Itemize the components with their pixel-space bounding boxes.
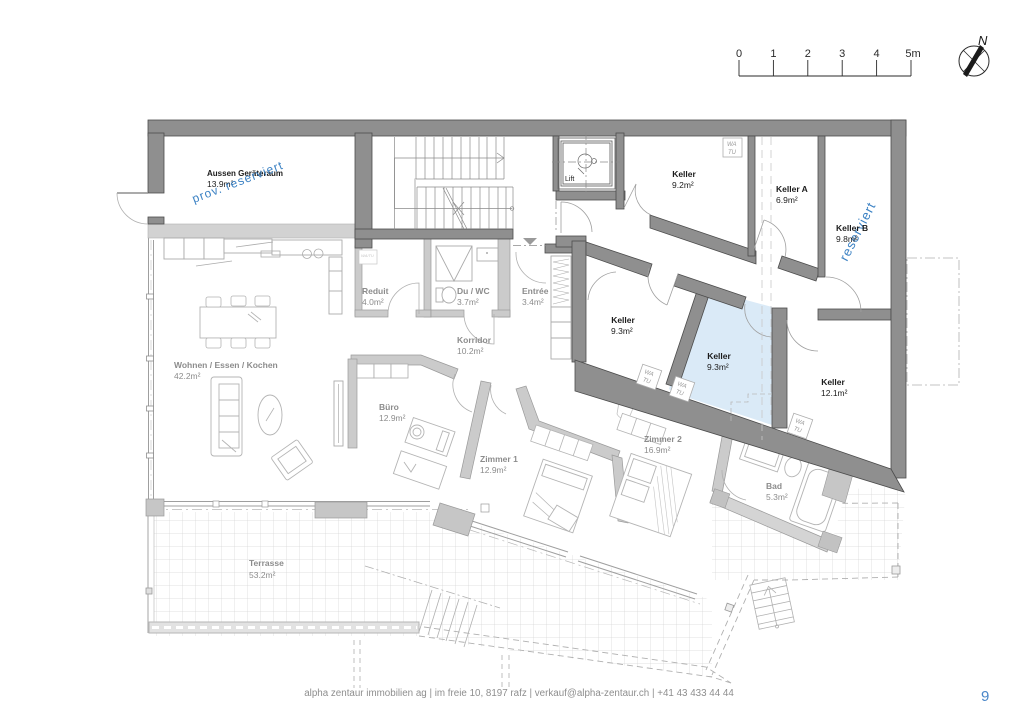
- svg-text:WA/TU: WA/TU: [361, 253, 374, 258]
- svg-text:Keller B: Keller B: [836, 223, 868, 233]
- svg-text:N: N: [978, 33, 988, 48]
- svg-text:16.9m²: 16.9m²: [644, 445, 671, 455]
- svg-text:1: 1: [770, 48, 776, 60]
- svg-text:Entrée: Entrée: [522, 286, 549, 296]
- svg-text:9.2m²: 9.2m²: [672, 180, 694, 190]
- svg-text:10.2m²: 10.2m²: [457, 346, 484, 356]
- svg-text:12.9m²: 12.9m²: [379, 413, 406, 423]
- svg-text:Keller: Keller: [672, 169, 696, 179]
- svg-text:5m: 5m: [905, 48, 920, 60]
- svg-text:Bad: Bad: [766, 481, 782, 491]
- svg-text:Du / WC: Du / WC: [457, 286, 490, 296]
- svg-text:Reduit: Reduit: [362, 286, 389, 296]
- svg-text:Wohnen / Essen / Kochen: Wohnen / Essen / Kochen: [174, 360, 278, 370]
- svg-text:2: 2: [805, 48, 811, 60]
- svg-text:9: 9: [981, 688, 989, 705]
- svg-text:Keller: Keller: [707, 351, 731, 361]
- svg-text:Büro: Büro: [379, 402, 399, 412]
- svg-text:12.9m²: 12.9m²: [480, 465, 507, 475]
- svg-text:Keller A: Keller A: [776, 184, 808, 194]
- svg-text:4: 4: [874, 48, 880, 60]
- svg-text:Keller: Keller: [821, 377, 845, 387]
- svg-text:5.3m²: 5.3m²: [766, 492, 788, 502]
- svg-text:9.3m²: 9.3m²: [611, 326, 633, 336]
- svg-text:42.2m²: 42.2m²: [174, 371, 201, 381]
- svg-text:alpha zentaur immobilien ag |: alpha zentaur immobilien ag | im freie 1…: [304, 688, 734, 699]
- svg-text:3: 3: [839, 48, 845, 60]
- svg-text:Keller: Keller: [611, 315, 635, 325]
- svg-text:3.4m²: 3.4m²: [522, 297, 544, 307]
- svg-text:TU: TU: [728, 150, 737, 156]
- svg-text:9.8m²: 9.8m²: [836, 234, 858, 244]
- svg-text:12.1m²: 12.1m²: [821, 388, 848, 398]
- svg-text:Korridor: Korridor: [457, 335, 492, 345]
- svg-text:6.9m²: 6.9m²: [776, 195, 798, 205]
- svg-text:Terrasse: Terrasse: [249, 558, 284, 568]
- svg-text:9.3m²: 9.3m²: [707, 362, 729, 372]
- svg-text:0: 0: [736, 48, 742, 60]
- svg-text:3.7m²: 3.7m²: [457, 297, 479, 307]
- svg-text:Lift: Lift: [565, 176, 574, 183]
- svg-text:WA: WA: [727, 142, 737, 148]
- svg-text:4.0m²: 4.0m²: [362, 297, 384, 307]
- svg-text:53.2m²: 53.2m²: [249, 570, 276, 580]
- svg-text:Zimmer 1: Zimmer 1: [480, 454, 518, 464]
- svg-text:Zimmer 2: Zimmer 2: [644, 434, 682, 444]
